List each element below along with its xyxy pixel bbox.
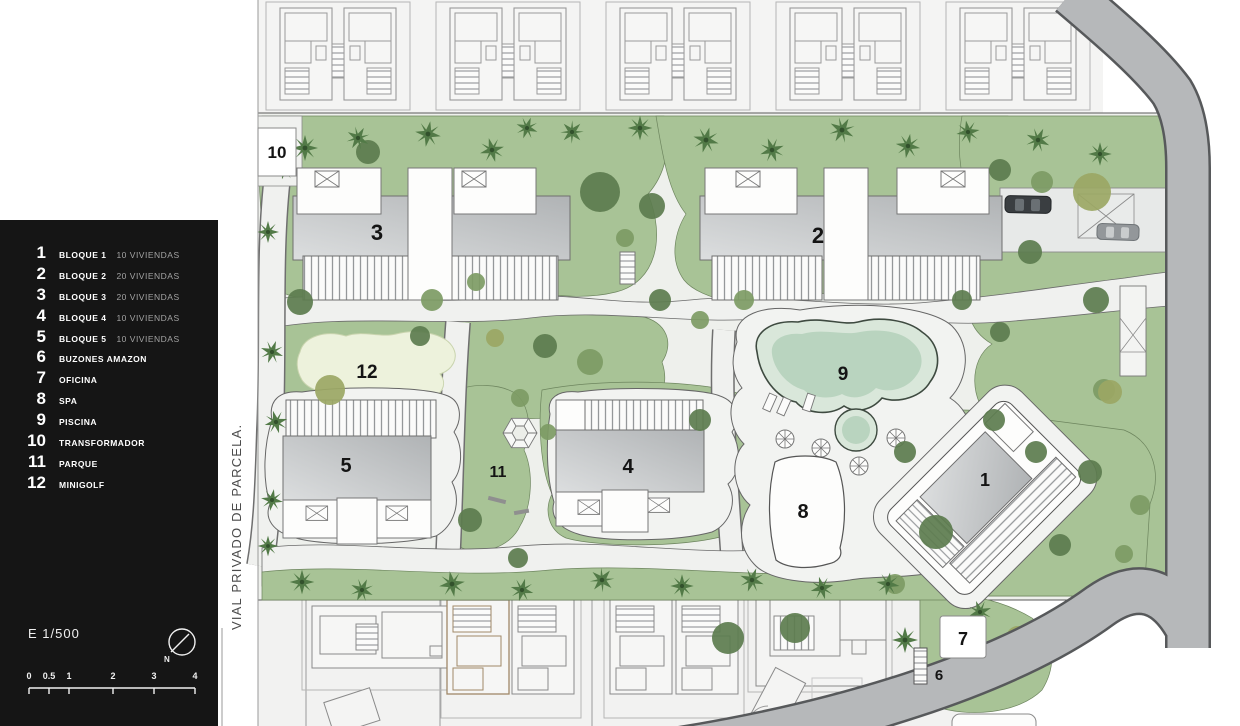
legend-item: 1BLOQUE 110 VIVIENDAS bbox=[0, 244, 218, 265]
legend-item: 4BLOQUE 410 VIVIENDAS bbox=[0, 307, 218, 328]
scale-tick: 0.5 bbox=[43, 671, 56, 681]
street-name-label: VIAL PRIVADO DE PARCELA. bbox=[224, 388, 250, 630]
pedestrian-entrance bbox=[1120, 286, 1146, 376]
marker-buzones: 6 bbox=[935, 667, 943, 684]
scale-tick: 0 bbox=[26, 671, 31, 681]
marker-oficina: 7 bbox=[958, 629, 968, 649]
amazon-lockers bbox=[914, 648, 927, 684]
marker-block1: 1 bbox=[980, 470, 990, 490]
scale-tick: 1 bbox=[66, 671, 71, 681]
car-dark bbox=[1005, 196, 1051, 214]
road-detail-shape bbox=[952, 714, 1036, 726]
legend-panel: 1BLOQUE 110 VIVIENDAS 2BLOQUE 220 VIVIEN… bbox=[0, 220, 218, 726]
north-circle bbox=[169, 629, 195, 655]
marker-transformador: 10 bbox=[268, 143, 287, 162]
legend-item: 7OFICINA bbox=[0, 369, 218, 390]
marker-parque: 11 bbox=[490, 464, 507, 481]
legend-list: 1BLOQUE 110 VIVIENDAS 2BLOQUE 220 VIVIEN… bbox=[0, 244, 218, 495]
legend-item: 9PISCINA bbox=[0, 411, 218, 432]
car-light bbox=[1097, 223, 1140, 240]
marker-block2: 2 bbox=[812, 223, 824, 248]
scale-tick: 4 bbox=[192, 671, 197, 681]
legend-item: 10TRANSFORMADOR bbox=[0, 432, 218, 453]
marker-minigolf: 12 bbox=[356, 362, 377, 383]
scale-tick: 3 bbox=[151, 671, 156, 681]
scale-tick: 2 bbox=[110, 671, 115, 681]
legend-item: 6BUZONES AMAZON bbox=[0, 348, 218, 369]
legend-item: 11PARQUE bbox=[0, 453, 218, 474]
legend-item: 3BLOQUE 320 VIVIENDAS bbox=[0, 286, 218, 307]
legend-item: 2BLOQUE 220 VIVIENDAS bbox=[0, 265, 218, 286]
building-5 bbox=[283, 400, 436, 544]
legend-item: 5BLOQUE 510 VIVIENDAS bbox=[0, 328, 218, 349]
marker-spa: 8 bbox=[797, 501, 808, 523]
building-3 bbox=[293, 168, 570, 300]
marker-block4: 4 bbox=[622, 456, 634, 478]
marker-block5: 5 bbox=[340, 455, 351, 477]
existing-houses-top bbox=[258, 0, 1103, 113]
stairs-detail bbox=[620, 252, 635, 284]
site-plan-page: 10 7 6 3 2 5 4 1 9 8 12 11 1BLOQUE 110 V… bbox=[0, 0, 1240, 726]
legend-item: 8SPA bbox=[0, 390, 218, 411]
legend-item: 12MINIGOLF bbox=[0, 474, 218, 495]
marker-piscina: 9 bbox=[838, 364, 849, 385]
scale-text: E 1/500 bbox=[28, 626, 80, 641]
marker-block3: 3 bbox=[371, 220, 383, 245]
north-needle bbox=[171, 634, 189, 652]
building-2 bbox=[700, 168, 1002, 300]
scale-bar: 0 0.5 1 2 3 4 bbox=[0, 662, 218, 698]
